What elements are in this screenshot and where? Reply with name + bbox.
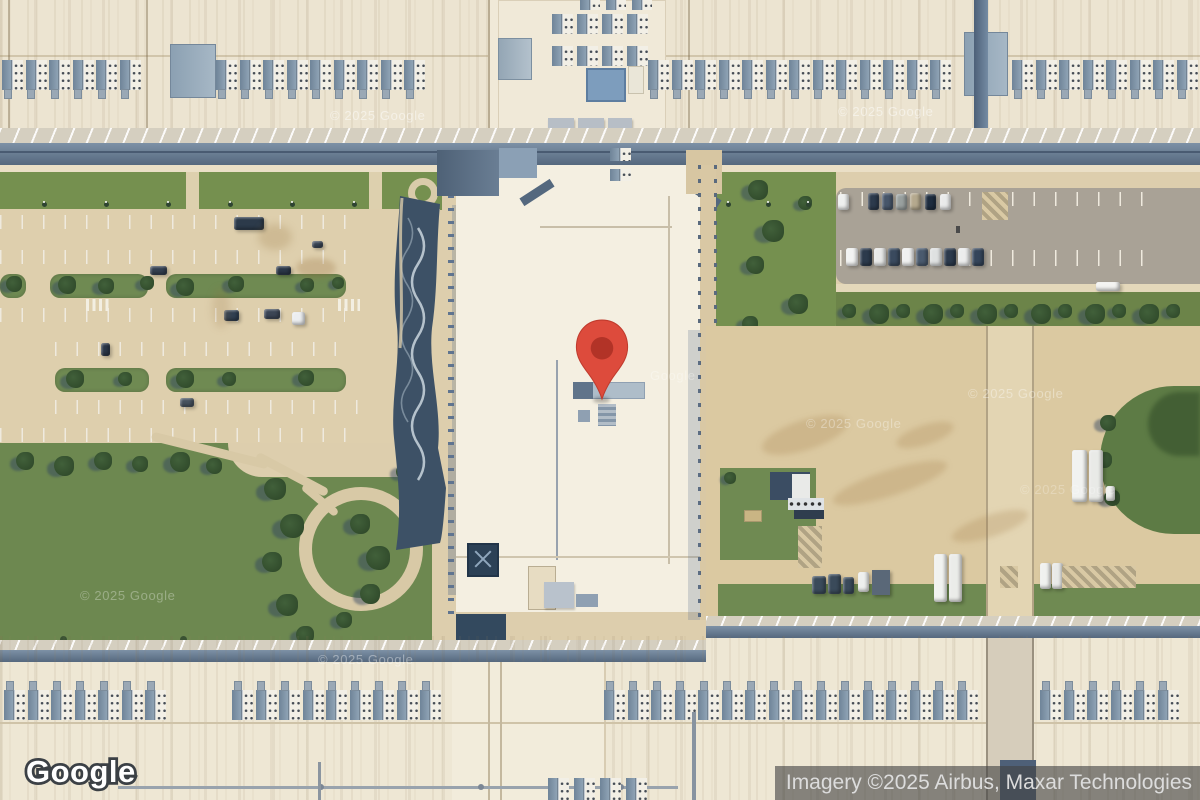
hvac-unit	[1022, 60, 1033, 90]
hvac-duct	[1042, 681, 1050, 691]
hvac-duct	[673, 89, 681, 99]
tree	[58, 276, 76, 294]
vehicle	[838, 194, 849, 210]
hvac-duct	[814, 89, 822, 99]
hvac-unit	[802, 690, 813, 720]
hvac-unit	[96, 60, 106, 90]
hvac-duct	[147, 681, 155, 691]
vehicle	[828, 574, 841, 594]
hvac-duct	[74, 89, 82, 99]
hvac-unit	[886, 690, 896, 720]
hvac-unit	[383, 690, 394, 720]
hvac-duct	[838, 89, 846, 99]
hvac-unit	[849, 690, 860, 720]
hvac-unit	[1168, 690, 1179, 720]
hvac-unit	[1177, 60, 1187, 90]
vehicle	[1040, 563, 1051, 589]
hvac-duct	[29, 681, 37, 691]
vehicle	[292, 312, 305, 325]
hvac-unit	[638, 690, 649, 720]
tree	[140, 276, 154, 290]
hvac-duct	[1112, 681, 1120, 691]
vehicle	[874, 248, 886, 266]
hvac-unit	[430, 690, 441, 720]
hvac-unit	[620, 169, 631, 181]
bush	[43, 201, 45, 203]
hvac-duct	[864, 681, 872, 691]
hvac-unit	[1012, 60, 1022, 90]
location-pin-body	[576, 320, 627, 399]
roof-seam	[488, 662, 490, 800]
roof-pipe	[692, 712, 696, 800]
hvac-unit	[610, 778, 621, 800]
vehicle	[888, 248, 900, 266]
hvac-duct	[1131, 89, 1139, 99]
hvac-unit	[695, 60, 705, 90]
hatch-area	[1062, 566, 1136, 588]
tree	[16, 452, 34, 470]
hvac-unit	[610, 169, 620, 181]
hvac-duct	[1136, 681, 1144, 691]
hvac-duct	[932, 89, 940, 99]
hvac-duct	[265, 89, 273, 99]
hvac-unit	[1046, 60, 1057, 90]
hvac-unit	[910, 690, 920, 720]
vehicle	[1096, 282, 1120, 291]
lawn-path	[369, 172, 382, 210]
tree	[350, 514, 370, 534]
hvac-unit	[548, 778, 558, 800]
hvac-unit	[1059, 60, 1069, 90]
hvac-unit	[1083, 60, 1093, 90]
hvac-unit	[896, 690, 907, 720]
hvac-unit	[4, 690, 14, 720]
hvac-duct	[650, 89, 658, 99]
hvac-duct	[744, 89, 752, 99]
tree	[176, 370, 194, 388]
building-shadow	[688, 330, 700, 620]
hvac-unit	[636, 778, 647, 800]
vehicle	[858, 572, 869, 592]
hvac-unit	[1116, 60, 1127, 90]
hvac-unit	[562, 14, 573, 34]
roof-pipe	[318, 762, 321, 800]
hvac-unit	[705, 60, 716, 90]
hvac-duct	[606, 681, 614, 691]
crosswalk	[86, 299, 112, 311]
hvac-unit	[420, 690, 430, 720]
hvac-unit	[1050, 690, 1061, 720]
vehicle	[944, 248, 956, 266]
hvac-unit	[627, 46, 637, 66]
hvac-unit	[263, 60, 273, 90]
hvac-unit	[1134, 690, 1144, 720]
hvac-unit	[732, 690, 743, 720]
hvac-unit	[49, 60, 59, 90]
tree	[176, 278, 194, 296]
roof-seam	[500, 662, 502, 800]
hvac-duct	[700, 681, 708, 691]
bush	[229, 201, 231, 203]
hvac-unit	[577, 14, 587, 34]
hvac-unit	[1064, 690, 1074, 720]
hvac-duct	[406, 89, 414, 99]
hvac-unit	[28, 690, 38, 720]
hvac-unit	[729, 60, 740, 90]
hvac-unit	[287, 60, 297, 90]
hvac-duct	[861, 89, 869, 99]
hvac-unit	[967, 690, 978, 720]
hvac-duct	[791, 89, 799, 99]
dirt-stain	[212, 288, 230, 328]
hvac-unit	[1111, 690, 1121, 720]
hvac-unit	[632, 0, 642, 10]
hvac-unit	[602, 14, 612, 34]
hvac-unit	[1144, 690, 1155, 720]
hvac-unit	[1097, 690, 1108, 720]
hvac-duct	[1014, 89, 1022, 99]
hvac-duct	[6, 681, 14, 691]
hvac-unit	[132, 690, 143, 720]
tree	[1031, 304, 1051, 324]
hvac-unit	[637, 46, 648, 66]
hvac-unit	[600, 778, 610, 800]
rooftop-plant	[498, 38, 532, 80]
hvac-duct	[100, 681, 108, 691]
vehicle	[264, 309, 280, 319]
hvac-duct	[281, 681, 289, 691]
vehicle	[916, 248, 928, 266]
tree	[788, 294, 808, 314]
hvac-duct	[27, 89, 35, 99]
tree	[366, 546, 390, 570]
hvac-unit	[256, 690, 266, 720]
hvac-duct	[794, 681, 802, 691]
parking-stripes	[55, 342, 345, 356]
hvac-unit	[242, 690, 253, 720]
hvac-unit	[940, 60, 951, 90]
tree	[94, 452, 112, 470]
equipment-row	[788, 498, 824, 510]
tree	[6, 276, 22, 292]
hvac-unit	[404, 60, 414, 90]
hvac-duct	[335, 89, 343, 99]
roof-seam	[488, 0, 490, 143]
roof-seam	[668, 196, 670, 564]
hvac-unit	[289, 690, 300, 720]
hvac-unit	[310, 60, 320, 90]
yard-road	[986, 326, 1034, 660]
hvac-unit	[610, 148, 620, 161]
tree	[300, 278, 314, 292]
hvac-duct	[653, 681, 661, 691]
hvac-unit	[562, 46, 573, 66]
hvac-unit	[51, 690, 61, 720]
tree	[132, 456, 148, 472]
vehicle	[843, 577, 854, 594]
vehicle	[846, 248, 858, 266]
hvac-duct	[241, 89, 249, 99]
hvac-unit	[336, 690, 347, 720]
hvac-unit	[73, 60, 83, 90]
crosswalk	[338, 299, 360, 311]
hvac-duct	[958, 681, 966, 691]
tree	[118, 372, 132, 386]
hvac-unit	[1140, 60, 1151, 90]
sidewalk	[836, 284, 1200, 292]
bush	[105, 201, 107, 203]
tree	[1004, 304, 1018, 318]
hvac-unit	[326, 690, 336, 720]
hvac-unit	[863, 690, 873, 720]
tree	[1085, 304, 1105, 324]
hvac-unit	[642, 0, 652, 10]
hvac-unit	[792, 690, 802, 720]
hvac-unit	[266, 690, 277, 720]
hvac-duct	[888, 681, 896, 691]
hvac-duct	[351, 681, 359, 691]
hvac-unit	[226, 60, 237, 90]
trailer	[794, 510, 824, 519]
hvac-unit	[1040, 690, 1050, 720]
hvac-unit	[1106, 60, 1116, 90]
hvac-unit	[836, 60, 846, 90]
hvac-duct	[375, 681, 383, 691]
hvac-unit	[2, 60, 12, 90]
hvac-unit	[357, 60, 367, 90]
hvac-duct	[76, 681, 84, 691]
location-pin-icon[interactable]	[571, 317, 633, 403]
hvac-unit	[1121, 690, 1132, 720]
tree	[228, 276, 244, 292]
hvac-unit	[1130, 60, 1140, 90]
tree	[1058, 304, 1072, 318]
hvac-unit	[799, 60, 810, 90]
hvac-unit	[637, 14, 648, 34]
hvac-duct	[885, 89, 893, 99]
tree	[332, 277, 344, 289]
hvac-unit	[813, 60, 823, 90]
hvac-duct	[121, 89, 129, 99]
hvac-unit	[626, 778, 636, 800]
hvac-unit	[606, 0, 616, 10]
vehicle	[949, 554, 962, 602]
hvac-unit	[580, 0, 590, 10]
hvac-unit	[1036, 60, 1046, 90]
hvac-unit	[870, 60, 881, 90]
vehicle	[868, 193, 879, 210]
hvac-unit	[14, 690, 25, 720]
hvac-duct	[51, 89, 59, 99]
roof-seam	[556, 360, 558, 560]
vehicle	[180, 398, 194, 407]
tree	[1166, 304, 1180, 318]
parking-stripes	[55, 400, 362, 414]
hvac-unit	[344, 60, 355, 90]
hvac-unit	[752, 60, 763, 90]
hvac-duct	[328, 681, 336, 691]
hvac-unit	[240, 60, 250, 90]
hvac-unit	[722, 690, 732, 720]
vehicle	[234, 217, 264, 230]
hvac-unit	[155, 690, 166, 720]
vehicle	[312, 241, 323, 248]
tree	[748, 180, 768, 200]
vehicle	[101, 343, 110, 356]
hvac-duct	[422, 681, 430, 691]
hvac-unit	[584, 778, 595, 800]
hvac-duct	[359, 89, 367, 99]
google-logo[interactable]: Google	[20, 748, 150, 794]
hvac-unit	[590, 0, 600, 10]
hvac-unit	[755, 690, 766, 720]
hvac-unit	[297, 60, 308, 90]
container	[872, 570, 890, 595]
vehicle	[150, 266, 167, 275]
hvac-unit	[552, 14, 562, 34]
hvac-unit	[1153, 60, 1163, 90]
hvac-unit	[397, 690, 407, 720]
skylight	[586, 68, 626, 102]
hvac-duct	[841, 681, 849, 691]
hvac-duct	[720, 89, 728, 99]
hvac-unit	[26, 60, 36, 90]
hvac-unit	[816, 690, 826, 720]
hvac-unit	[85, 690, 96, 720]
hvac-unit	[106, 60, 117, 90]
rooftop-box	[578, 410, 590, 422]
vehicle	[1072, 450, 1087, 502]
bush	[167, 201, 169, 203]
hvac-unit	[1087, 690, 1097, 720]
hvac-unit	[574, 778, 584, 800]
hvac-unit	[769, 690, 779, 720]
hvac-duct	[1084, 89, 1092, 99]
hvac-unit	[98, 690, 108, 720]
hvac-unit	[846, 60, 857, 90]
hvac-unit	[1069, 60, 1080, 90]
utility-box	[576, 594, 598, 607]
tree	[276, 594, 298, 616]
hvac-unit	[1187, 60, 1198, 90]
pipe-joint	[478, 784, 484, 790]
hvac-unit	[373, 690, 383, 720]
location-pin-inner-circle	[591, 337, 614, 360]
hvac-duct	[218, 89, 226, 99]
hvac-unit	[930, 60, 940, 90]
vehicle	[812, 576, 826, 594]
vehicle	[958, 248, 970, 266]
lawn-path	[186, 172, 199, 210]
hvac-duct	[4, 89, 12, 99]
hvac-unit	[883, 60, 893, 90]
hvac-duct	[1108, 89, 1116, 99]
hvac-unit	[682, 60, 693, 90]
tree	[977, 304, 997, 324]
hvac-duct	[911, 681, 919, 691]
hvac-unit	[604, 690, 614, 720]
vehicle	[910, 193, 921, 210]
hvac-unit	[917, 60, 928, 90]
hvac-duct	[98, 89, 106, 99]
hvac-unit	[602, 46, 612, 66]
hvac-unit	[612, 46, 623, 66]
hvac-duct	[398, 681, 406, 691]
bush	[807, 201, 809, 203]
tree	[264, 478, 286, 500]
vehicle	[902, 248, 914, 266]
hvac-duct	[1065, 681, 1073, 691]
utility-box	[544, 582, 574, 608]
hvac-unit	[661, 690, 672, 720]
hvac-duct	[53, 681, 61, 691]
hvac-duct	[123, 681, 131, 691]
hvac-unit	[130, 60, 141, 90]
hvac-unit	[873, 690, 884, 720]
hvac-unit	[616, 0, 626, 10]
hvac-duct	[935, 681, 943, 691]
hvac-unit	[628, 690, 638, 720]
bush	[727, 201, 729, 203]
parking-stripes	[0, 215, 362, 229]
tree	[762, 220, 784, 242]
hvac-unit	[648, 60, 658, 90]
hvac-unit	[587, 46, 598, 66]
tree	[360, 584, 380, 604]
hvac-unit	[587, 14, 598, 34]
hvac-unit	[320, 60, 331, 90]
tree	[724, 472, 736, 484]
bush	[291, 201, 293, 203]
hatch-area	[1000, 566, 1018, 588]
hvac-unit	[742, 60, 752, 90]
hvac-duct	[770, 681, 778, 691]
hvac-unit	[552, 46, 562, 66]
hvac-unit	[120, 60, 130, 90]
hvac-unit	[943, 690, 954, 720]
dock-shadow-band	[0, 143, 1200, 165]
bush	[767, 201, 769, 203]
tree	[842, 304, 856, 318]
hvac-duct	[312, 89, 320, 99]
hvac-duct	[1061, 89, 1069, 99]
hvac-unit	[933, 690, 943, 720]
hvac-unit	[708, 690, 719, 720]
vehicle	[896, 194, 907, 210]
satellite-map[interactable]: © 2025 Google © 2025 Google © 2025 Googl…	[0, 0, 1200, 800]
hvac-unit	[1163, 60, 1174, 90]
hvac-unit	[672, 60, 682, 90]
hvac-unit	[36, 60, 47, 90]
hvac-unit	[313, 690, 324, 720]
hvac-unit	[957, 690, 967, 720]
hvac-unit	[675, 690, 685, 720]
hvac-unit	[776, 60, 787, 90]
hvac-unit	[612, 14, 623, 34]
tree	[896, 304, 910, 318]
hvac-duct	[676, 681, 684, 691]
hvac-unit	[75, 690, 85, 720]
vehicle	[940, 194, 951, 210]
hvac-unit	[273, 60, 284, 90]
vehicle	[860, 248, 872, 266]
dirt-stain	[296, 258, 336, 278]
hvac-unit	[577, 46, 587, 66]
hvac-unit	[779, 690, 790, 720]
vehicle	[1089, 450, 1103, 502]
hvac-unit	[12, 60, 23, 90]
tree	[1139, 304, 1159, 324]
